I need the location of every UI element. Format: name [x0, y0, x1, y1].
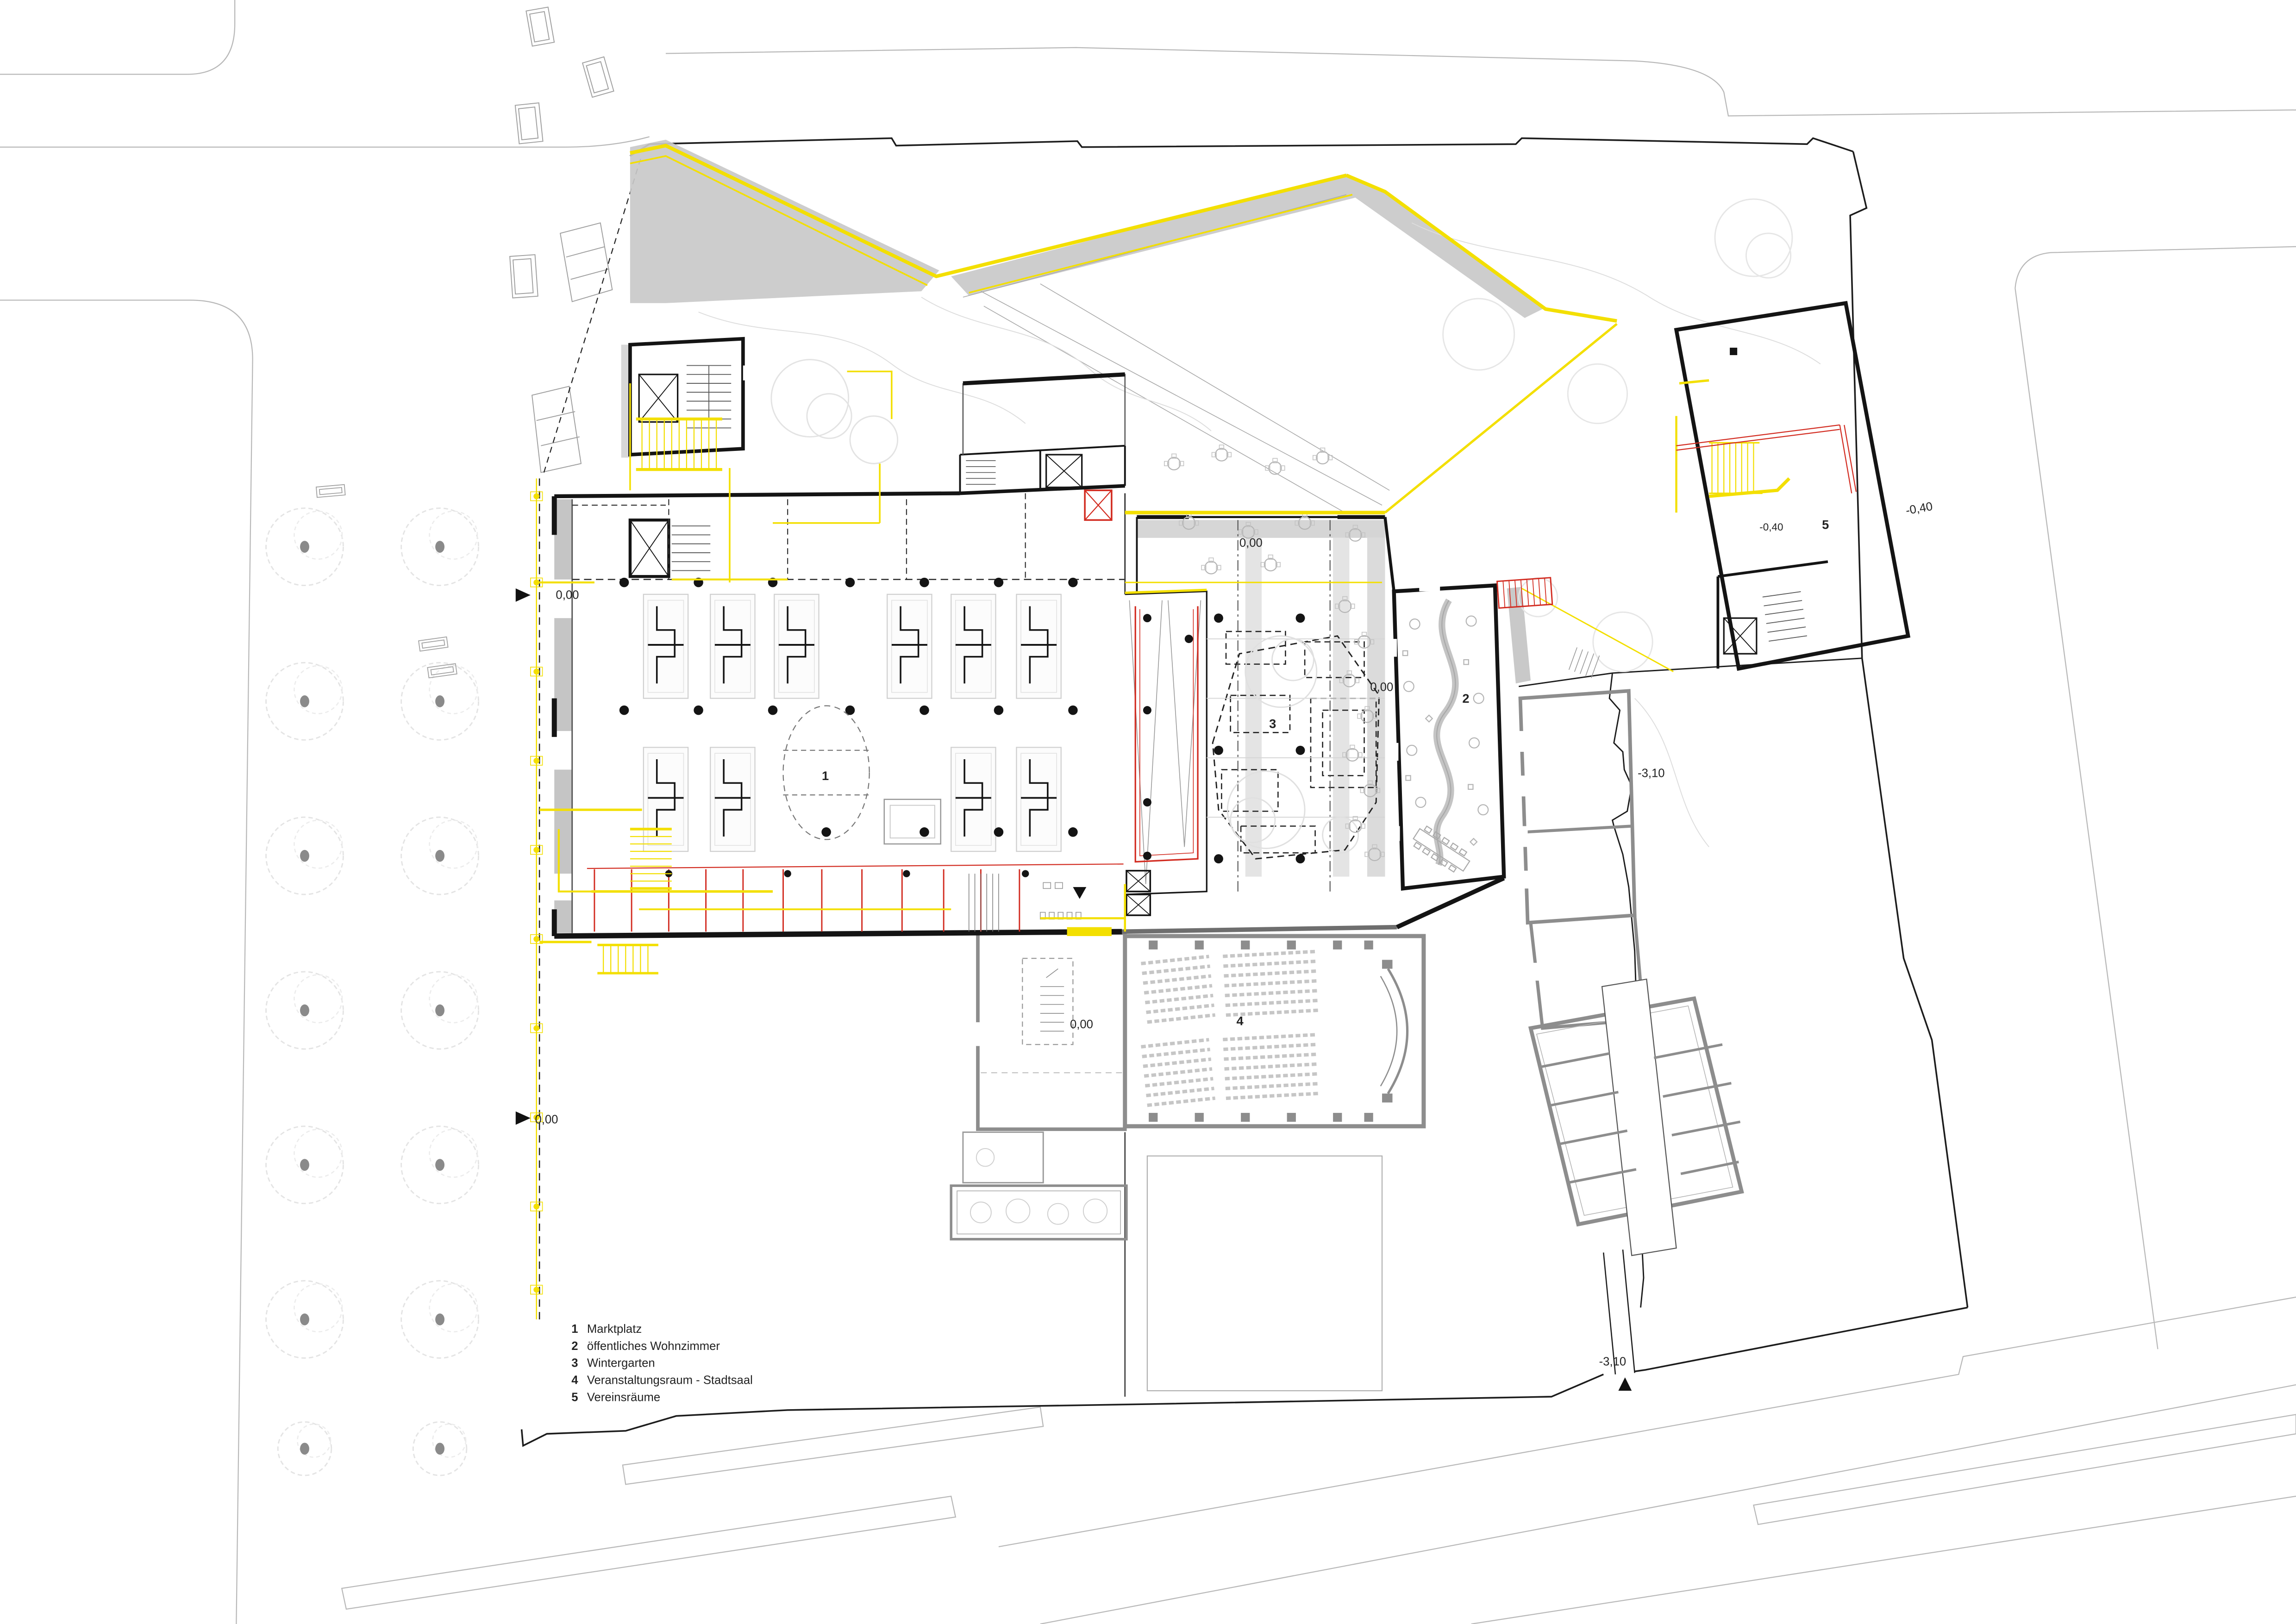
- level-label-south-path: -3,10: [1599, 1355, 1626, 1368]
- legend-label-4: Veranstaltungsraum - Stadtsaal: [587, 1374, 753, 1387]
- legend-num-4: 4: [571, 1374, 578, 1387]
- stable-building: [1531, 979, 1742, 1255]
- stadtsaal-garden: [951, 1132, 1382, 1397]
- red-stair: [1497, 578, 1552, 608]
- floor-plan-canvas: 0,00 0,00 0,00 0,00 0,00 -0,40 -0,40 -3,…: [0, 0, 2296, 1624]
- level-label-terrace: 0,00: [1239, 537, 1263, 550]
- stadtsaal-annex: [973, 933, 1125, 1130]
- red-partitions: [594, 869, 1029, 932]
- park-trees: [266, 508, 479, 1475]
- yellow-stair-northwest: [636, 419, 722, 469]
- new-building-walls: [554, 303, 1908, 936]
- red-elevator: [1085, 490, 1112, 520]
- northwest-courtyard: [771, 360, 898, 464]
- market-hall: [572, 493, 1125, 851]
- east-building: [1516, 691, 1644, 1028]
- legend-label-1: Marktplatz: [587, 1323, 642, 1336]
- room-number-stadtsaal: 4: [1236, 1014, 1244, 1028]
- northeast-wing: [960, 375, 1125, 493]
- level-label-building5: -0,40: [1759, 521, 1783, 533]
- entrance-arrow-down-icon: [1073, 887, 1086, 899]
- entrance-arrow-south-icon: [1618, 1377, 1632, 1391]
- entrance-arrow-west1-icon: [516, 588, 531, 602]
- building5-walls: [1677, 303, 1908, 669]
- service-stair: [969, 874, 999, 931]
- stadtsaal-hall: [1125, 936, 1424, 1126]
- legend: 1 Marktplatz 2 öffentliches Wohnzimmer 3…: [571, 1323, 753, 1404]
- site-plan-svg: 0,00 0,00 0,00 0,00 0,00 -0,40 -0,40 -3,…: [0, 0, 2296, 1624]
- legend-label-2: öffentliches Wohnzimmer: [587, 1340, 720, 1353]
- yellow-stair-building5: [1677, 381, 1789, 513]
- stadtsaal-seat-rows: [1141, 951, 1318, 1105]
- street-furniture: [510, 7, 614, 472]
- level-label-stadtsaal: 0,00: [1070, 1018, 1093, 1031]
- legend-num-1: 1: [571, 1323, 578, 1336]
- ramp-zone: [1125, 591, 1207, 894]
- level-label-street-east: -0,40: [1905, 500, 1933, 518]
- legend-num-2: 2: [571, 1340, 578, 1353]
- wintergarten: [1207, 520, 1385, 891]
- level-label-southwest: 0,00: [535, 1113, 558, 1126]
- level-label-wohnzimmer: 0,00: [1370, 681, 1393, 693]
- market-stalls: [644, 594, 1061, 851]
- wohnzimmer-walls: [1394, 586, 1504, 889]
- room-number-wohnzimmer: 2: [1462, 691, 1469, 706]
- level-label-courtyard: -3,10: [1638, 767, 1664, 780]
- legend-label-3: Wintergarten: [587, 1357, 655, 1370]
- legend-label-5: Vereinsräume: [587, 1391, 660, 1404]
- park-benches: [316, 485, 457, 678]
- wohnzimmer: [1403, 600, 1488, 876]
- room-number-marktplatz: 1: [822, 768, 829, 783]
- room-number-vereinsraeume: 5: [1822, 518, 1829, 532]
- park: [266, 159, 641, 1475]
- red-elements: [1085, 425, 1856, 862]
- ramp-columns: [1143, 614, 1193, 860]
- legend-num-3: 3: [571, 1357, 578, 1370]
- west-core: [630, 520, 710, 576]
- level-label-market: 0,00: [556, 588, 579, 601]
- entrance-arrow-west2-icon: [516, 1112, 531, 1125]
- room-number-wintergarten: 3: [1269, 717, 1276, 731]
- legend-num-5: 5: [571, 1391, 578, 1404]
